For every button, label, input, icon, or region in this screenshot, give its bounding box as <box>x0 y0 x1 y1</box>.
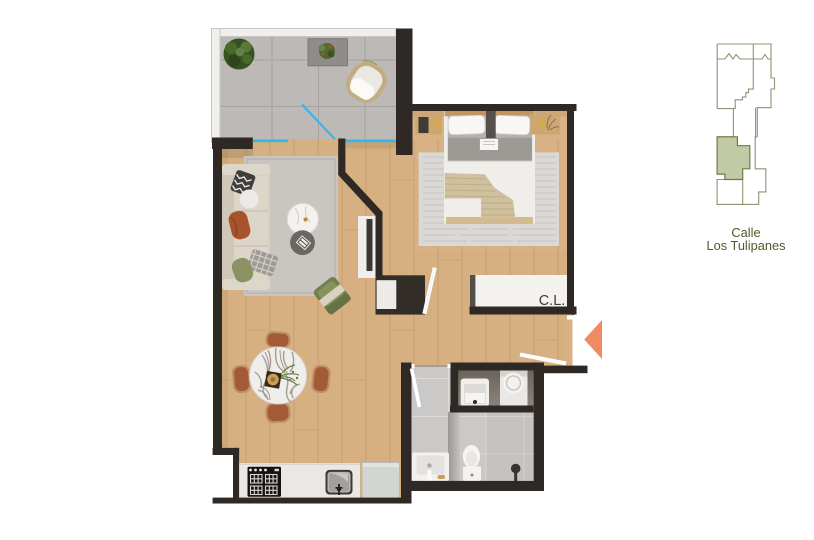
svg-text:Los Tulipanes: Los Tulipanes <box>707 238 786 253</box>
